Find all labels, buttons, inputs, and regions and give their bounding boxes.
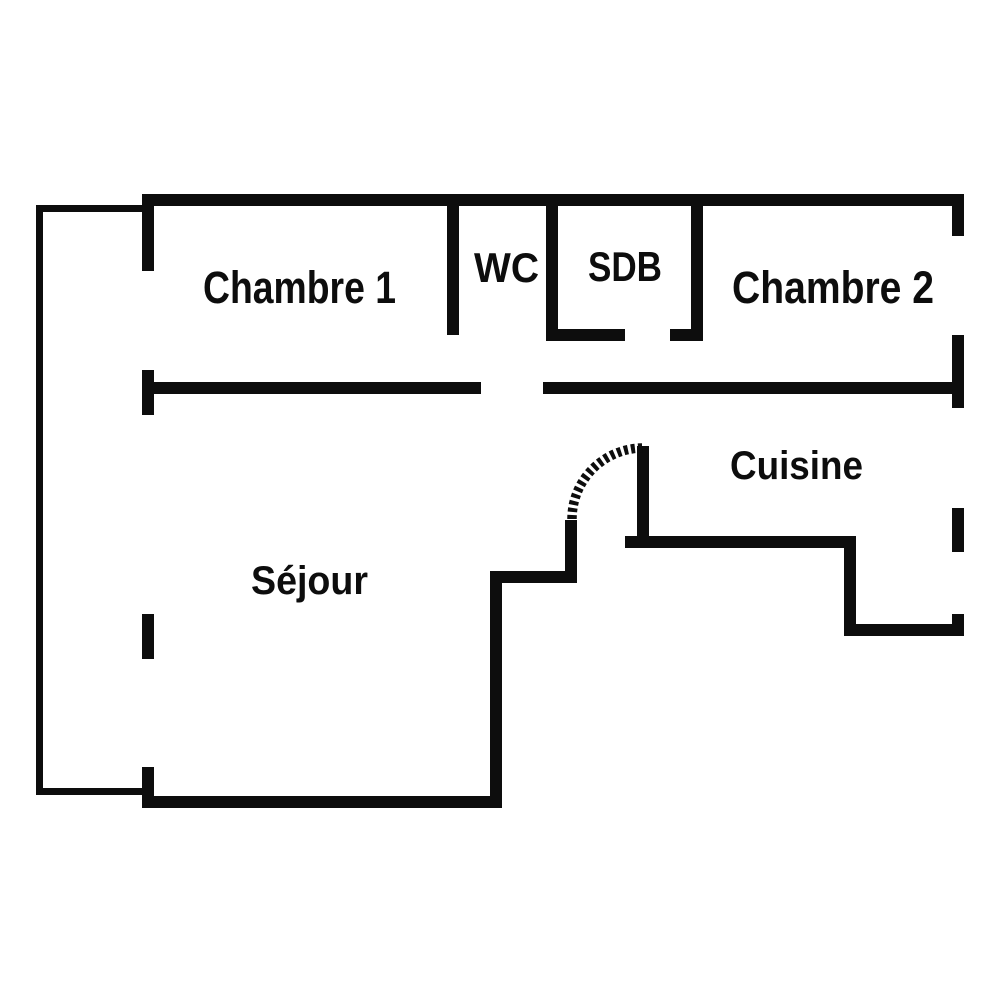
svg-text:Chambre 2: Chambre 2 bbox=[732, 262, 934, 313]
svg-text:Chambre 1: Chambre 1 bbox=[203, 262, 396, 313]
svg-text:Séjour: Séjour bbox=[251, 559, 368, 603]
svg-text:Cuisine: Cuisine bbox=[730, 444, 863, 488]
svg-text:WC: WC bbox=[474, 244, 539, 291]
svg-text:SDB: SDB bbox=[588, 243, 662, 290]
